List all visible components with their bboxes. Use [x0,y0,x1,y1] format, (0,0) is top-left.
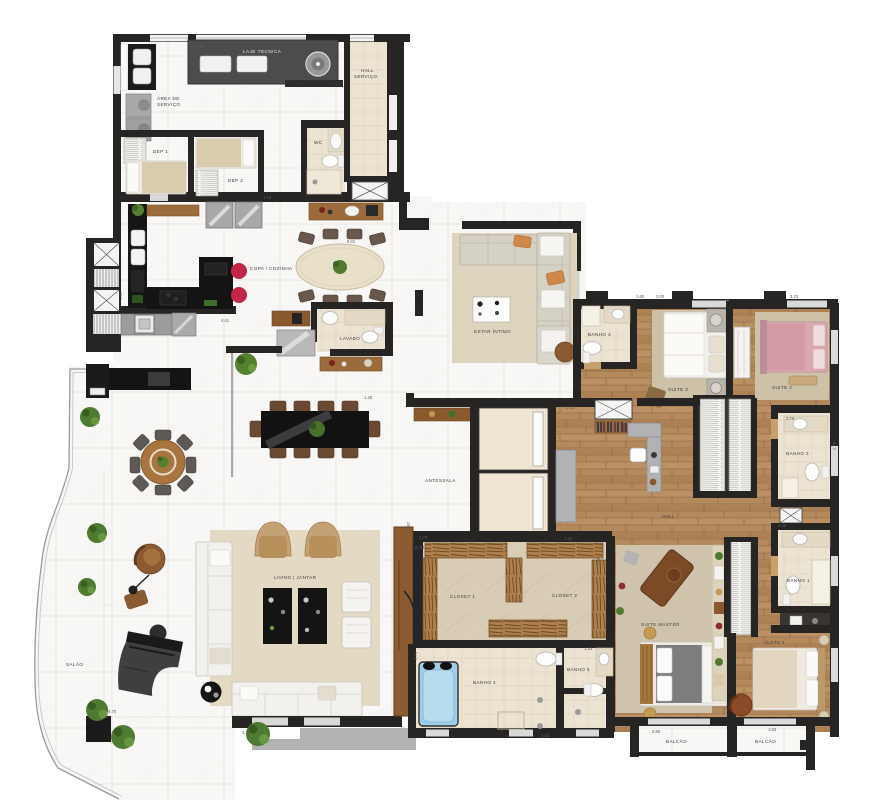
svg-text:SUITE MASTER: SUITE MASTER [641,622,680,627]
svg-text:BALCÃO: BALCÃO [666,738,687,744]
svg-text:3.97: 3.97 [406,521,411,530]
svg-text:LAVABO: LAVABO [340,336,360,341]
svg-text:9.70: 9.70 [108,709,117,714]
svg-text:BANHO 1: BANHO 1 [787,578,810,583]
svg-text:SUITE 1: SUITE 1 [765,640,785,645]
svg-text:BALCÃO: BALCÃO [755,738,776,744]
svg-text:BANHO 3: BANHO 3 [588,332,611,337]
svg-text:BANHO 5: BANHO 5 [567,667,590,672]
svg-text:1.79: 1.79 [419,535,428,540]
svg-text:6.01: 6.01 [347,239,356,244]
svg-text:1.43: 1.43 [584,646,593,651]
svg-text:1.60: 1.60 [636,294,645,299]
svg-text:HALL: HALL [361,68,374,73]
svg-text:2.80: 2.80 [652,729,661,734]
svg-text:4.41: 4.41 [221,318,230,323]
svg-text:3.23: 3.23 [790,294,799,299]
svg-text:SERVIÇO: SERVIÇO [157,102,180,107]
svg-text:SERVIÇO: SERVIÇO [354,74,377,79]
svg-text:ESTAR ÍNTIMO: ESTAR ÍNTIMO [474,328,511,334]
svg-text:CLOSET 1: CLOSET 1 [450,594,475,599]
svg-text:LIVING | JANTAR: LIVING | JANTAR [274,575,317,580]
svg-text:SUITE 3: SUITE 3 [668,387,688,392]
svg-text:1.66: 1.66 [596,557,601,566]
svg-text:WC: WC [314,140,323,145]
svg-text:2.71: 2.71 [413,651,418,660]
svg-text:2.76: 2.76 [786,416,795,421]
svg-text:2.78: 2.78 [832,441,837,450]
svg-text:SALÃO: SALÃO [66,661,83,667]
svg-text:4.03: 4.03 [541,733,550,738]
svg-text:1.88: 1.88 [196,44,205,49]
svg-text:5.46: 5.46 [118,291,123,300]
svg-text:ÁREA DE: ÁREA DE [157,95,180,101]
svg-text:CLOSET 2: CLOSET 2 [552,593,577,598]
svg-text:1.16: 1.16 [263,195,272,200]
svg-text:1.83: 1.83 [768,727,777,732]
svg-text:0.50: 0.50 [566,405,575,410]
svg-text:3.25: 3.25 [242,730,251,735]
svg-text:COPA / COZINHA: COPA / COZINHA [250,266,293,271]
svg-text:10.04: 10.04 [414,545,425,550]
svg-text:DEP 2: DEP 2 [228,178,243,183]
svg-text:BANHO 2: BANHO 2 [786,451,809,456]
svg-text:BANHO 4: BANHO 4 [473,680,496,685]
svg-text:7.25: 7.25 [564,536,573,541]
svg-text:ANTESSALA: ANTESSALA [425,478,456,483]
svg-text:SUITE 2: SUITE 2 [772,385,792,390]
svg-text:3.00: 3.00 [656,294,665,299]
svg-text:HALL: HALL [662,514,675,519]
svg-text:LAJE TÉCNICA: LAJE TÉCNICA [243,48,282,54]
svg-text:1.38: 1.38 [778,523,787,528]
svg-text:1.35: 1.35 [364,395,373,400]
svg-text:DEP 1: DEP 1 [153,149,168,154]
